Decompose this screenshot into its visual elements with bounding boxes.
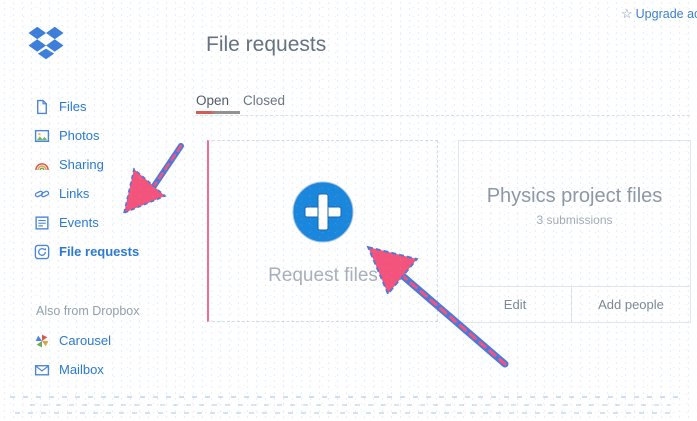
sidebar-item-links[interactable]: Links: [34, 179, 184, 208]
noise-strip: [15, 412, 675, 414]
noise-strip: [30, 404, 670, 406]
photo-icon: [34, 128, 50, 144]
page-title: File requests: [206, 33, 326, 57]
edit-button[interactable]: Edit: [459, 287, 572, 322]
file-request-title: Physics project files: [459, 141, 690, 208]
file-request-item-card[interactable]: Physics project files 3 submissions Edit…: [458, 140, 691, 323]
sidebar-item-photos[interactable]: Photos: [34, 121, 184, 150]
sidebar-extra: Carousel Mailbox: [34, 326, 184, 384]
sidebar-item-files[interactable]: Files: [34, 92, 184, 121]
sidebar-item-label: Events: [59, 215, 99, 230]
mailbox-envelope-icon: [34, 362, 50, 378]
add-people-button[interactable]: Add people: [572, 287, 690, 322]
dropbox-logo-icon[interactable]: [26, 24, 66, 67]
file-request-icon: [34, 244, 50, 260]
sidebar-item-label: Files: [59, 99, 86, 114]
also-from-dropbox-label: Also from Dropbox: [36, 304, 140, 318]
sidebar-item-label: Sharing: [59, 157, 104, 172]
list-icon: [34, 215, 50, 231]
tab-bar-divider: [195, 115, 690, 116]
card-actions: Edit Add people: [459, 286, 690, 322]
tab-closed[interactable]: Closed: [243, 93, 285, 113]
star-icon: ☆: [621, 6, 633, 21]
tab-open[interactable]: Open: [196, 93, 229, 113]
sidebar-item-label: Carousel: [59, 333, 111, 348]
dropbox-file-requests-page: ☆Upgrade ac Files: [0, 0, 697, 421]
sidebar: Files Photos Sharing Links: [34, 92, 184, 266]
carousel-pinwheel-icon: [34, 333, 50, 349]
submissions-count: 3 submissions: [459, 213, 690, 227]
sidebar-item-label: Mailbox: [59, 362, 104, 377]
sidebar-item-sharing[interactable]: Sharing: [34, 150, 184, 179]
request-files-label: Request files: [209, 265, 437, 287]
active-tab-underline: [196, 111, 240, 114]
sidebar-item-mailbox[interactable]: Mailbox: [34, 355, 184, 384]
sidebar-item-label: Photos: [59, 128, 99, 143]
sidebar-item-events[interactable]: Events: [34, 208, 184, 237]
chain-link-icon: [34, 186, 50, 202]
plus-circle-icon[interactable]: [209, 180, 437, 249]
upgrade-account-link[interactable]: ☆Upgrade ac: [621, 6, 697, 24]
tab-bar: Open Closed: [196, 93, 285, 113]
noise-strip: [10, 396, 680, 398]
sidebar-item-carousel[interactable]: Carousel: [34, 326, 184, 355]
sidebar-item-label: File requests: [59, 244, 139, 259]
request-files-card[interactable]: Request files: [207, 140, 438, 322]
sidebar-item-label: Links: [59, 186, 89, 201]
rainbow-icon: [34, 157, 50, 173]
document-icon: [34, 99, 50, 115]
upgrade-label: Upgrade ac: [636, 7, 697, 21]
sidebar-item-file-requests[interactable]: File requests: [34, 237, 184, 266]
